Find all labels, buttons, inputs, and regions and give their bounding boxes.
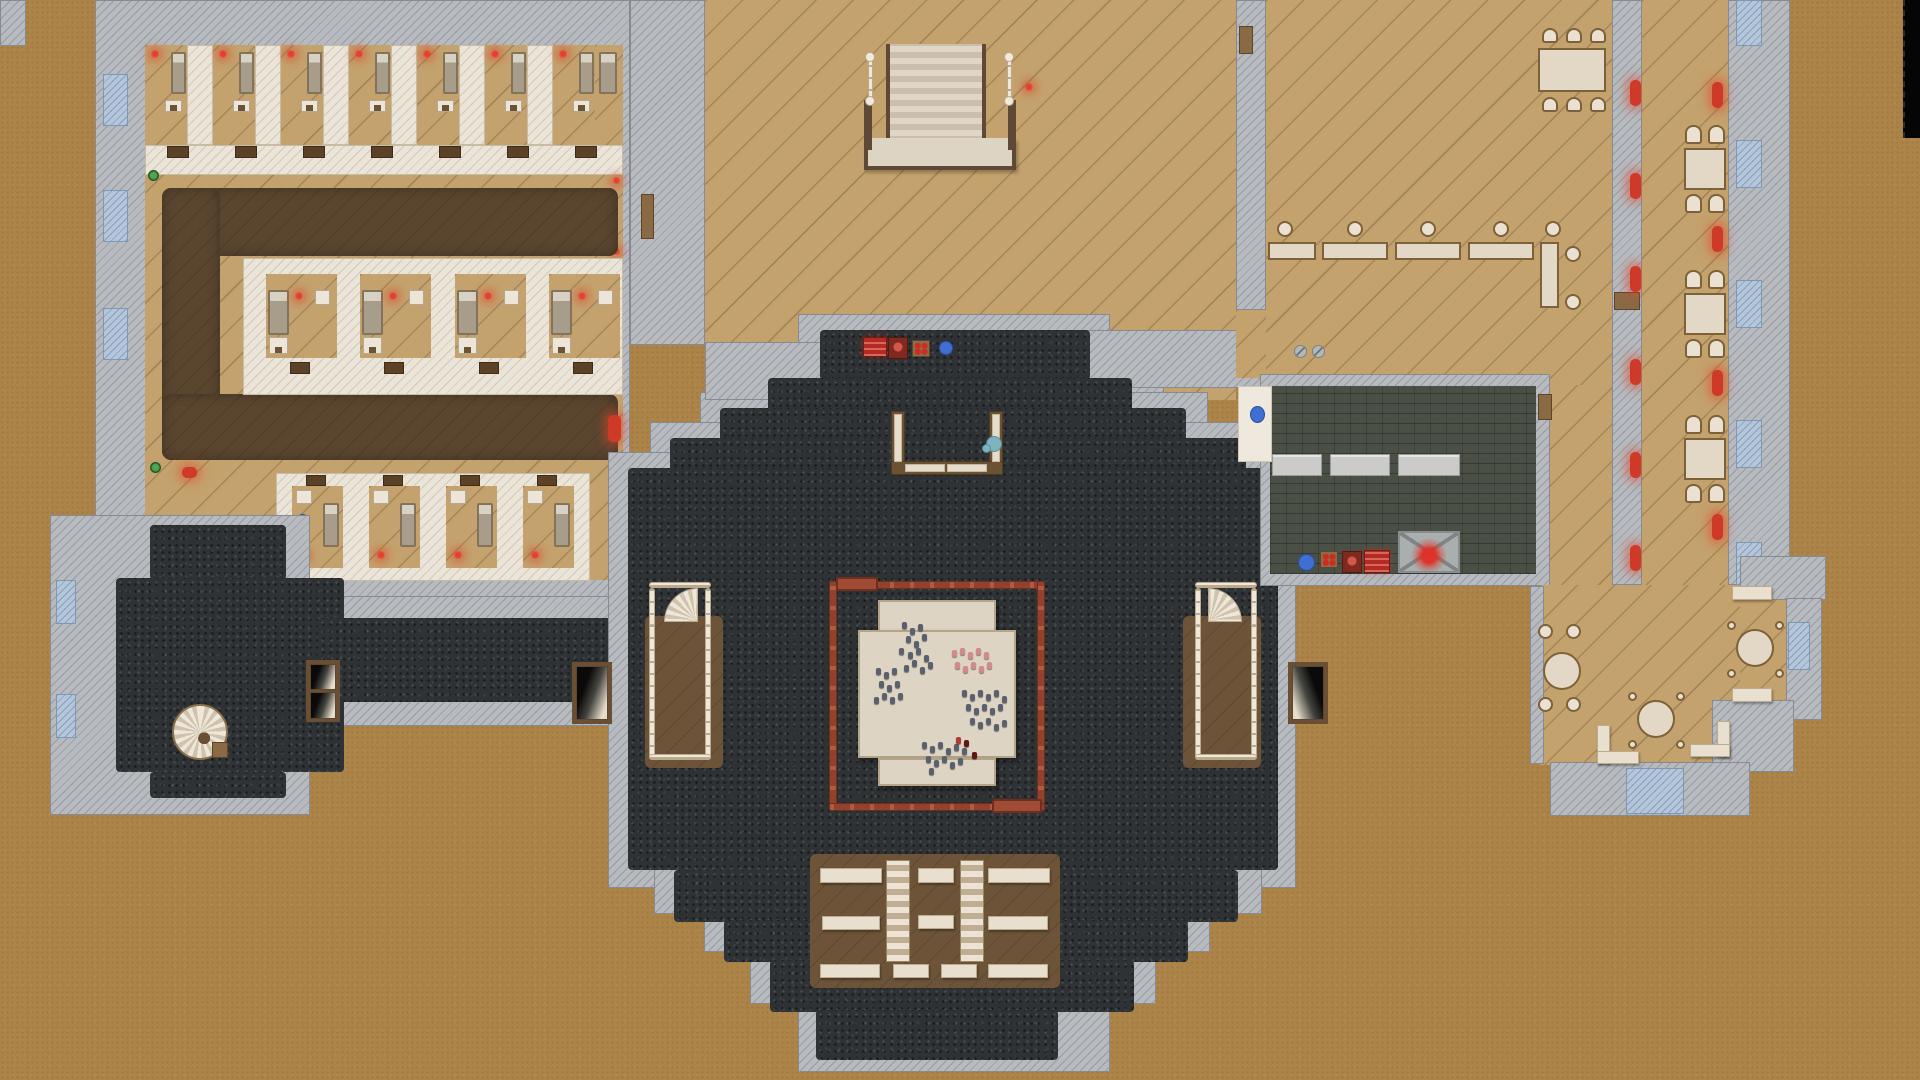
wall-torch[interactable] xyxy=(1630,359,1641,385)
wall-bench[interactable] xyxy=(1732,688,1772,702)
great-hall-floor xyxy=(820,330,1090,380)
person-slate-icon[interactable] xyxy=(914,641,919,648)
person-red-icon[interactable] xyxy=(956,737,961,744)
stool[interactable] xyxy=(1545,221,1561,237)
cabinet[interactable] xyxy=(504,290,519,305)
person-slate-icon[interactable] xyxy=(912,660,917,667)
stool[interactable] xyxy=(1565,246,1581,262)
nightstand[interactable] xyxy=(301,100,318,112)
kitchen-annex xyxy=(1238,386,1272,462)
wall-torch[interactable] xyxy=(1630,80,1641,106)
railing xyxy=(705,588,711,628)
cell-door[interactable] xyxy=(303,146,325,158)
cabinet[interactable] xyxy=(598,290,613,305)
red-lamp[interactable] xyxy=(558,49,568,59)
chair[interactable] xyxy=(1708,415,1725,434)
cell-partition xyxy=(255,45,281,145)
round-table[interactable] xyxy=(1637,700,1675,738)
person-slate-icon[interactable] xyxy=(970,694,975,701)
basin[interactable] xyxy=(982,444,991,453)
window xyxy=(56,694,76,738)
red-lamp[interactable] xyxy=(376,550,386,560)
person-slate-icon[interactable] xyxy=(958,758,963,765)
person-slate-icon[interactable] xyxy=(887,685,892,692)
person-slate-icon[interactable] xyxy=(884,672,889,679)
person-slate-icon[interactable] xyxy=(892,668,897,675)
railing xyxy=(649,582,711,588)
person-slate-icon[interactable] xyxy=(934,760,939,767)
person-pink-icon[interactable] xyxy=(968,652,973,659)
green-marker[interactable] xyxy=(150,462,161,473)
bed[interactable] xyxy=(477,503,493,547)
meeting-table[interactable] xyxy=(1538,48,1606,92)
person-slate-icon[interactable] xyxy=(994,724,999,731)
person-slate-icon[interactable] xyxy=(922,634,927,641)
person-slate-icon[interactable] xyxy=(1002,696,1007,703)
person-slate-icon[interactable] xyxy=(998,704,1003,711)
long-table[interactable] xyxy=(1468,242,1534,260)
person-slate-icon[interactable] xyxy=(910,628,915,635)
bay-west-wall xyxy=(1530,586,1544,764)
aisle-runner[interactable] xyxy=(886,860,910,962)
cell-door[interactable] xyxy=(460,475,480,486)
red-machine[interactable] xyxy=(888,337,908,359)
red-lamp[interactable] xyxy=(354,49,364,59)
dresser[interactable] xyxy=(269,337,288,354)
bed[interactable] xyxy=(239,52,254,94)
cell-door[interactable] xyxy=(575,146,597,158)
person-pink-icon[interactable] xyxy=(976,648,981,655)
bed[interactable] xyxy=(400,503,416,547)
bed[interactable] xyxy=(171,52,186,94)
chair[interactable] xyxy=(1708,484,1725,503)
person-slate-icon[interactable] xyxy=(904,665,909,672)
bed[interactable] xyxy=(268,290,289,335)
stool[interactable] xyxy=(1538,697,1553,712)
stool[interactable] xyxy=(1676,692,1685,701)
person-slate-icon[interactable] xyxy=(916,648,921,655)
chair[interactable] xyxy=(1708,270,1725,289)
arena-gate[interactable] xyxy=(836,577,878,591)
nightstand[interactable] xyxy=(369,100,386,112)
person-pink-icon[interactable] xyxy=(971,662,976,669)
person-pink-icon[interactable] xyxy=(979,666,984,673)
alcove-floor-south xyxy=(150,772,286,798)
grand-staircase-steps[interactable] xyxy=(886,44,986,148)
pew-bench[interactable] xyxy=(988,868,1050,883)
railing xyxy=(649,588,655,628)
cell-partition xyxy=(187,45,213,145)
corner-bench[interactable] xyxy=(1690,744,1730,757)
round-table[interactable] xyxy=(1736,629,1774,667)
window xyxy=(1736,420,1762,468)
person-slate-icon[interactable] xyxy=(962,748,967,755)
person-slate-icon[interactable] xyxy=(890,697,895,704)
furnace[interactable] xyxy=(1398,531,1460,573)
pew-bench[interactable] xyxy=(918,915,954,929)
red-lamp[interactable] xyxy=(1024,82,1034,92)
person-pink-icon[interactable] xyxy=(952,650,957,657)
chair[interactable] xyxy=(1685,339,1702,358)
cell-door[interactable] xyxy=(290,362,310,374)
alcove-floor-north xyxy=(150,525,286,580)
nightstand[interactable] xyxy=(233,100,250,112)
newel-ball xyxy=(865,96,875,106)
person-slate-icon[interactable] xyxy=(924,655,929,662)
stool[interactable] xyxy=(1566,624,1581,639)
window xyxy=(1736,280,1762,328)
person-slate-icon[interactable] xyxy=(918,624,923,631)
stairs-down[interactable] xyxy=(310,664,336,690)
cafe-table[interactable] xyxy=(1684,293,1726,335)
chair[interactable] xyxy=(1685,125,1702,144)
person-slate-icon[interactable] xyxy=(994,690,999,697)
person-slate-icon[interactable] xyxy=(906,636,911,643)
pew-bench[interactable] xyxy=(988,916,1048,930)
railing xyxy=(649,754,711,760)
red-lamp[interactable] xyxy=(612,176,621,185)
cell-door[interactable] xyxy=(573,362,593,374)
spiral-stair-step[interactable] xyxy=(212,742,228,758)
cell-partition xyxy=(527,45,553,145)
person-dred-icon[interactable] xyxy=(964,740,969,747)
cell-door[interactable] xyxy=(384,362,404,374)
newel-ball xyxy=(1004,96,1014,106)
wall-torch[interactable] xyxy=(1712,370,1723,396)
wall-torch[interactable] xyxy=(1630,545,1641,571)
wall-torch[interactable] xyxy=(182,467,197,478)
bed[interactable] xyxy=(323,503,339,547)
arena-platform xyxy=(878,600,996,632)
bed[interactable] xyxy=(554,503,570,547)
person-pink-icon[interactable] xyxy=(963,666,968,673)
person-slate-icon[interactable] xyxy=(930,746,935,753)
person-slate-icon[interactable] xyxy=(902,622,907,629)
person-slate-icon[interactable] xyxy=(920,667,925,674)
red-lamp[interactable] xyxy=(453,550,463,560)
railing xyxy=(649,624,655,760)
arena-fence[interactable] xyxy=(1037,581,1045,811)
green-marker[interactable] xyxy=(148,170,159,181)
cell-door[interactable] xyxy=(235,146,257,158)
pew-bench[interactable] xyxy=(918,868,954,883)
stool[interactable] xyxy=(1420,221,1436,237)
chair[interactable] xyxy=(1542,97,1558,112)
great-hall-floor xyxy=(720,408,1186,442)
aisle-runner[interactable] xyxy=(960,860,984,962)
railing xyxy=(1195,624,1201,760)
couch-cushion xyxy=(894,414,902,462)
person-slate-icon[interactable] xyxy=(978,722,983,729)
person-slate-icon[interactable] xyxy=(978,690,983,697)
cabinet[interactable] xyxy=(373,490,389,504)
cafe-table[interactable] xyxy=(1684,148,1726,190)
person-slate-icon[interactable] xyxy=(974,708,979,715)
pew-bench[interactable] xyxy=(820,964,880,978)
wall-torch[interactable] xyxy=(1712,82,1723,108)
person-slate-icon[interactable] xyxy=(908,652,913,659)
couch-cushion xyxy=(905,464,945,472)
hall-west-wall xyxy=(630,0,705,345)
millstone[interactable] xyxy=(1294,345,1307,358)
chair[interactable] xyxy=(1708,339,1725,358)
bed[interactable] xyxy=(307,52,322,94)
cabinet[interactable] xyxy=(296,490,312,504)
chair[interactable] xyxy=(1566,97,1582,112)
bed[interactable] xyxy=(551,290,572,335)
red-lamp[interactable] xyxy=(294,291,304,301)
bed[interactable] xyxy=(375,52,390,94)
stool[interactable] xyxy=(1347,221,1363,237)
person-slate-icon[interactable] xyxy=(876,668,881,675)
wall-torch[interactable] xyxy=(1630,173,1641,199)
stair-rail xyxy=(1008,100,1016,150)
red-machine[interactable] xyxy=(1342,551,1362,573)
kitchen-door[interactable] xyxy=(1538,394,1552,420)
cell-partition xyxy=(459,45,485,145)
person-slate-icon[interactable] xyxy=(938,742,943,749)
person-slate-icon[interactable] xyxy=(986,694,991,701)
wall-torch[interactable] xyxy=(1712,514,1723,540)
person-pink-icon[interactable] xyxy=(987,662,992,669)
person-slate-icon[interactable] xyxy=(1002,720,1007,727)
stool[interactable] xyxy=(1676,740,1685,749)
stool[interactable] xyxy=(1628,692,1637,701)
long-table[interactable] xyxy=(1268,242,1316,260)
red-lamp[interactable] xyxy=(483,291,493,301)
wall-corner-nw xyxy=(0,0,26,46)
counter[interactable] xyxy=(1398,454,1460,476)
great-hall-floor xyxy=(768,378,1132,412)
chair[interactable] xyxy=(1708,194,1725,213)
bed[interactable] xyxy=(362,290,383,335)
cell-door[interactable] xyxy=(306,475,326,486)
void-area xyxy=(1903,0,1920,138)
cabinet[interactable] xyxy=(450,490,466,504)
red-lamp[interactable] xyxy=(530,550,540,560)
person-slate-icon[interactable] xyxy=(950,762,955,769)
nightstand[interactable] xyxy=(165,100,182,112)
person-slate-icon[interactable] xyxy=(922,742,927,749)
stool[interactable] xyxy=(1775,621,1784,630)
red-lamp[interactable] xyxy=(388,291,398,301)
dresser[interactable] xyxy=(552,337,571,354)
railing xyxy=(1195,588,1201,628)
hall-door[interactable] xyxy=(641,194,654,239)
stair-rail xyxy=(864,100,872,150)
water-jug[interactable] xyxy=(1250,406,1265,423)
person-slate-icon[interactable] xyxy=(954,744,959,751)
cell-door[interactable] xyxy=(479,362,499,374)
chair[interactable] xyxy=(1590,28,1606,43)
grand-staircase-landing[interactable] xyxy=(864,138,1016,170)
pew-bench[interactable] xyxy=(941,964,977,978)
newel-ball xyxy=(865,52,875,62)
round-table[interactable] xyxy=(1543,652,1581,690)
cell-door[interactable] xyxy=(383,475,403,486)
newel-ball xyxy=(1004,52,1014,62)
long-table[interactable] xyxy=(1322,242,1388,260)
window xyxy=(103,190,128,242)
person-slate-icon[interactable] xyxy=(986,718,991,725)
person-slate-icon[interactable] xyxy=(942,756,947,763)
stairs-down[interactable] xyxy=(1292,666,1324,720)
arena-fence[interactable] xyxy=(829,581,837,811)
stool[interactable] xyxy=(1775,669,1784,678)
bed[interactable] xyxy=(511,52,526,94)
cell-door[interactable] xyxy=(537,475,557,486)
chair[interactable] xyxy=(1566,28,1582,43)
person-slate-icon[interactable] xyxy=(970,718,975,725)
railing xyxy=(1195,754,1257,760)
chair[interactable] xyxy=(1708,125,1725,144)
stool[interactable] xyxy=(1727,621,1736,630)
person-slate-icon[interactable] xyxy=(946,748,951,755)
stairs-down[interactable] xyxy=(310,692,336,719)
chair[interactable] xyxy=(1685,194,1702,213)
fortress-map-viewport[interactable] xyxy=(0,0,1920,1080)
nightstand[interactable] xyxy=(573,100,590,112)
person-slate-icon[interactable] xyxy=(990,708,995,715)
person-pink-icon[interactable] xyxy=(960,648,965,655)
cafe-table[interactable] xyxy=(1684,438,1726,480)
person-slate-icon[interactable] xyxy=(882,693,887,700)
person-slate-icon[interactable] xyxy=(966,704,971,711)
cell-door[interactable] xyxy=(371,146,393,158)
basin[interactable] xyxy=(1298,554,1315,571)
bed[interactable] xyxy=(443,52,458,94)
millstone[interactable] xyxy=(1312,345,1325,358)
red-lamp[interactable] xyxy=(218,49,228,59)
person-slate-icon[interactable] xyxy=(926,756,931,763)
wall-torch[interactable] xyxy=(608,415,621,442)
person-slate-icon[interactable] xyxy=(899,648,904,655)
stool[interactable] xyxy=(1277,221,1293,237)
red-lamp[interactable] xyxy=(422,49,432,59)
stool[interactable] xyxy=(1538,624,1553,639)
stool[interactable] xyxy=(1565,294,1581,310)
counter[interactable] xyxy=(1272,454,1322,476)
railing xyxy=(1251,588,1257,628)
bed[interactable] xyxy=(599,52,617,94)
chair[interactable] xyxy=(1685,415,1702,434)
cell-door[interactable] xyxy=(167,146,189,158)
carpet-top xyxy=(162,188,618,256)
person-slate-icon[interactable] xyxy=(895,681,900,688)
window xyxy=(1626,768,1684,814)
red-banner-crate[interactable] xyxy=(863,337,887,357)
cell-door[interactable] xyxy=(507,146,529,158)
blue-orb[interactable] xyxy=(939,341,953,355)
chair[interactable] xyxy=(1685,484,1702,503)
cell-partition xyxy=(391,45,417,145)
window xyxy=(103,74,128,126)
pew-bench[interactable] xyxy=(822,916,880,930)
stool[interactable] xyxy=(1727,669,1736,678)
window xyxy=(56,580,76,624)
couch-cushion xyxy=(947,464,987,472)
counter[interactable] xyxy=(1330,454,1390,476)
corner-bench[interactable] xyxy=(1597,751,1639,764)
pew-bench[interactable] xyxy=(820,868,882,883)
great-hall-floor xyxy=(816,1010,1058,1060)
balcony-west xyxy=(645,616,723,768)
nightstand[interactable] xyxy=(505,100,522,112)
dresser[interactable] xyxy=(458,337,477,354)
window xyxy=(1788,622,1810,670)
cabinet[interactable] xyxy=(409,290,424,305)
cell-partition xyxy=(323,45,349,145)
pew-bench[interactable] xyxy=(988,964,1048,978)
red-lamp[interactable] xyxy=(150,49,160,59)
pew-bench[interactable] xyxy=(893,964,929,978)
stool[interactable] xyxy=(1628,740,1637,749)
crate-red-orbs[interactable] xyxy=(912,340,930,357)
stairs-down[interactable] xyxy=(576,666,608,720)
cabinet[interactable] xyxy=(527,490,543,504)
wall-bench[interactable] xyxy=(1732,586,1772,600)
dresser[interactable] xyxy=(363,337,382,354)
person-slate-icon[interactable] xyxy=(982,704,987,711)
window xyxy=(1736,140,1762,188)
red-lamp[interactable] xyxy=(286,49,296,59)
person-pink-icon[interactable] xyxy=(955,662,960,669)
person-slate-icon[interactable] xyxy=(928,662,933,669)
mid-wall-door[interactable] xyxy=(1614,292,1640,310)
person-slate-icon[interactable] xyxy=(879,681,884,688)
chair[interactable] xyxy=(1542,28,1558,43)
arena-gate[interactable] xyxy=(992,799,1042,813)
stool[interactable] xyxy=(1493,221,1509,237)
wall-torch[interactable] xyxy=(1712,226,1723,252)
carpet-bottom xyxy=(162,394,618,460)
crate-red-orbs[interactable] xyxy=(1320,551,1338,568)
long-table[interactable] xyxy=(1540,242,1559,308)
wall-torch[interactable] xyxy=(1630,452,1641,478)
person-dred-icon[interactable] xyxy=(972,752,977,759)
window xyxy=(103,308,128,360)
window xyxy=(1736,0,1762,46)
wall-torch[interactable] xyxy=(1630,266,1641,292)
stool[interactable] xyxy=(1566,697,1581,712)
red-banner-crate[interactable] xyxy=(1364,550,1390,573)
long-table[interactable] xyxy=(1395,242,1461,260)
chair[interactable] xyxy=(1590,97,1606,112)
railing xyxy=(705,624,711,760)
person-slate-icon[interactable] xyxy=(962,690,967,697)
cabinet[interactable] xyxy=(315,290,330,305)
cell-door[interactable] xyxy=(439,146,461,158)
chair[interactable] xyxy=(1685,270,1702,289)
passage-floor xyxy=(1236,310,1266,378)
person-slate-icon[interactable] xyxy=(874,697,879,704)
person-slate-icon[interactable] xyxy=(898,693,903,700)
dining-door[interactable] xyxy=(1239,26,1253,54)
person-pink-icon[interactable] xyxy=(984,652,989,659)
railing xyxy=(1195,582,1257,588)
bed[interactable] xyxy=(457,290,478,335)
red-lamp[interactable] xyxy=(577,291,587,301)
bed[interactable] xyxy=(579,52,594,94)
nightstand[interactable] xyxy=(437,100,454,112)
railing xyxy=(1251,624,1257,760)
red-lamp[interactable] xyxy=(490,49,500,59)
person-slate-icon[interactable] xyxy=(929,768,934,775)
